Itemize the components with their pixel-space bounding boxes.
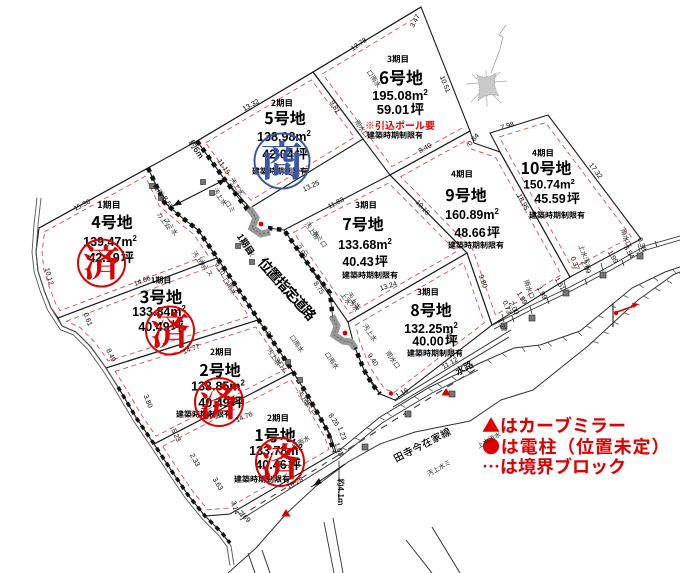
svg-text:195.08m2: 195.08m2: [372, 88, 428, 103]
svg-text:133.68m2: 133.68m2: [338, 237, 392, 252]
svg-text:40.43: 40.43: [342, 255, 373, 269]
svg-text:48.66: 48.66: [454, 226, 485, 240]
svg-text:160.89m2: 160.89m2: [445, 207, 499, 222]
svg-text:150.74m2: 150.74m2: [523, 177, 575, 192]
svg-text:45.59: 45.59: [534, 192, 565, 206]
svg-text:40.00: 40.00: [412, 335, 443, 349]
svg-text:59.01: 59.01: [377, 102, 410, 117]
